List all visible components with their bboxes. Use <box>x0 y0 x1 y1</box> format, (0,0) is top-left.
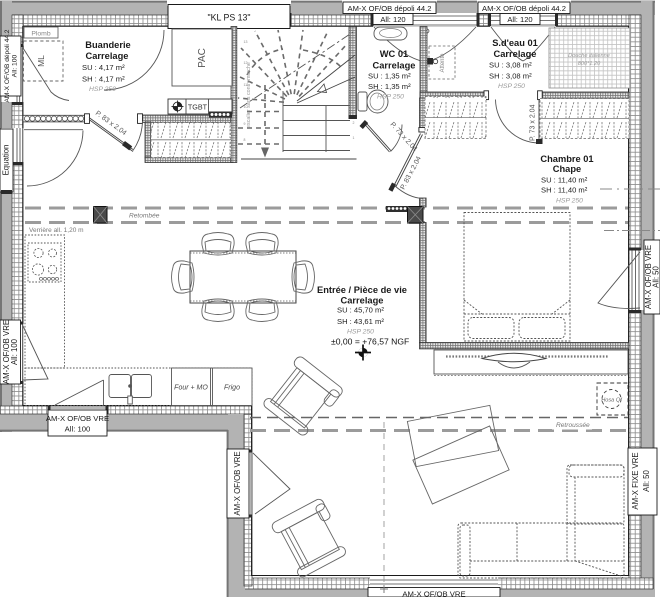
svg-text:SH : 1,35 m²: SH : 1,35 m² <box>368 82 411 91</box>
svg-text:HSP 250: HSP 250 <box>347 329 374 336</box>
svg-text:3: 3 <box>353 106 355 110</box>
svg-text:SU : 45,70 m²: SU : 45,70 m² <box>337 306 384 315</box>
svg-text:SH : 3,08 m²: SH : 3,08 m² <box>489 72 532 81</box>
svg-text:AM-X OF/OB dépoli 44.2: AM-X OF/OB dépoli 44.2 <box>4 29 11 102</box>
svg-text:SH : 4,17 m²: SH : 4,17 m² <box>82 75 125 84</box>
svg-text:P. 73 x 2.04: P. 73 x 2.04 <box>530 104 537 141</box>
svg-text:Chape: Chape <box>553 164 581 174</box>
svg-text:Retroussée: Retroussée <box>556 422 590 429</box>
svg-text:Four + MO: Four + MO <box>174 385 208 392</box>
svg-text:±0,00 = +76,57 NGF: ±0,00 = +76,57 NGF <box>331 337 409 347</box>
svg-text:HSP 250: HSP 250 <box>556 198 583 205</box>
svg-text:SU : 3,08 m²: SU : 3,08 m² <box>489 61 532 70</box>
svg-text:AM-X OF/OB VRE: AM-X OF/OB VRE <box>46 414 109 423</box>
svg-text:escalier sans contremarche: escalier sans contremarche <box>246 62 252 128</box>
svg-text:HSP 250: HSP 250 <box>89 86 116 93</box>
svg-text:8: 8 <box>244 138 246 142</box>
svg-text:S.d'eau 01: S.d'eau 01 <box>492 38 538 48</box>
svg-text:SU : 1,35 m²: SU : 1,35 m² <box>368 72 411 81</box>
svg-text:All: 120: All: 120 <box>380 15 405 24</box>
svg-text:800*1.20: 800*1.20 <box>578 61 601 67</box>
svg-text:All: 50: All: 50 <box>652 266 660 288</box>
svg-text:5: 5 <box>353 57 355 61</box>
svg-text:Attente: Attente <box>440 53 446 73</box>
svg-text:"KL PS 13": "KL PS 13" <box>207 13 250 23</box>
svg-text:ML: ML <box>36 55 46 67</box>
svg-text:Hosa Qf: Hosa Qf <box>601 398 623 404</box>
svg-text:Retombée: Retombée <box>129 213 160 220</box>
svg-text:HSP 250: HSP 250 <box>377 94 404 101</box>
svg-text:Carrelage: Carrelage <box>494 49 537 59</box>
svg-text:AM-X OF/OB VRE: AM-X OF/OB VRE <box>402 590 465 597</box>
svg-text:All: 120: All: 120 <box>507 15 532 24</box>
svg-text:Entrée / Pièce de vie: Entrée / Pièce de vie <box>317 285 407 295</box>
svg-text:Frigo: Frigo <box>224 385 240 392</box>
svg-text:Verrière all. 1,20 m: Verrière all. 1,20 m <box>29 227 84 234</box>
svg-text:Buanderie: Buanderie <box>85 40 130 50</box>
svg-text:Carrelage: Carrelage <box>373 61 416 71</box>
svg-text:Equation: Equation <box>2 145 11 176</box>
svg-text:1: 1 <box>353 136 355 140</box>
svg-text:All: 50: All: 50 <box>642 470 651 492</box>
svg-text:All: 100: All: 100 <box>10 338 19 365</box>
svg-text:All: 100: All: 100 <box>12 54 19 77</box>
svg-text:TGBT: TGBT <box>188 103 208 112</box>
svg-text:SU : 11,40 m²: SU : 11,40 m² <box>541 176 588 185</box>
svg-text:AM-X OF/OB VRE: AM-X OF/OB VRE <box>233 451 242 515</box>
svg-text:SH : 11,40 m²: SH : 11,40 m² <box>541 186 588 195</box>
svg-text:Chambre 01: Chambre 01 <box>540 154 593 164</box>
svg-text:Douche italienne: Douche italienne <box>568 53 610 59</box>
svg-text:PAC: PAC <box>197 48 208 68</box>
svg-text:WC 01: WC 01 <box>380 49 408 59</box>
svg-text:Carrelage: Carrelage <box>341 296 384 306</box>
svg-text:HSP 250: HSP 250 <box>498 83 525 90</box>
svg-text:Carrelage: Carrelage <box>86 51 129 61</box>
svg-text:SH : 43,61 m²: SH : 43,61 m² <box>337 317 384 326</box>
svg-text:AM-X FIXE VRE: AM-X FIXE VRE <box>631 452 640 509</box>
svg-text:AM-X OF/OB dépoli 44.2: AM-X OF/OB dépoli 44.2 <box>482 4 566 13</box>
svg-text:AM-X OF/OB dépoli 44.2: AM-X OF/OB dépoli 44.2 <box>348 4 432 13</box>
svg-text:All: 100: All: 100 <box>65 425 91 434</box>
svg-text:2: 2 <box>353 121 355 125</box>
svg-text:SU : 4,17 m²: SU : 4,17 m² <box>82 63 125 72</box>
svg-text:Plomb: Plomb <box>31 31 50 38</box>
svg-text:13: 13 <box>244 40 248 44</box>
